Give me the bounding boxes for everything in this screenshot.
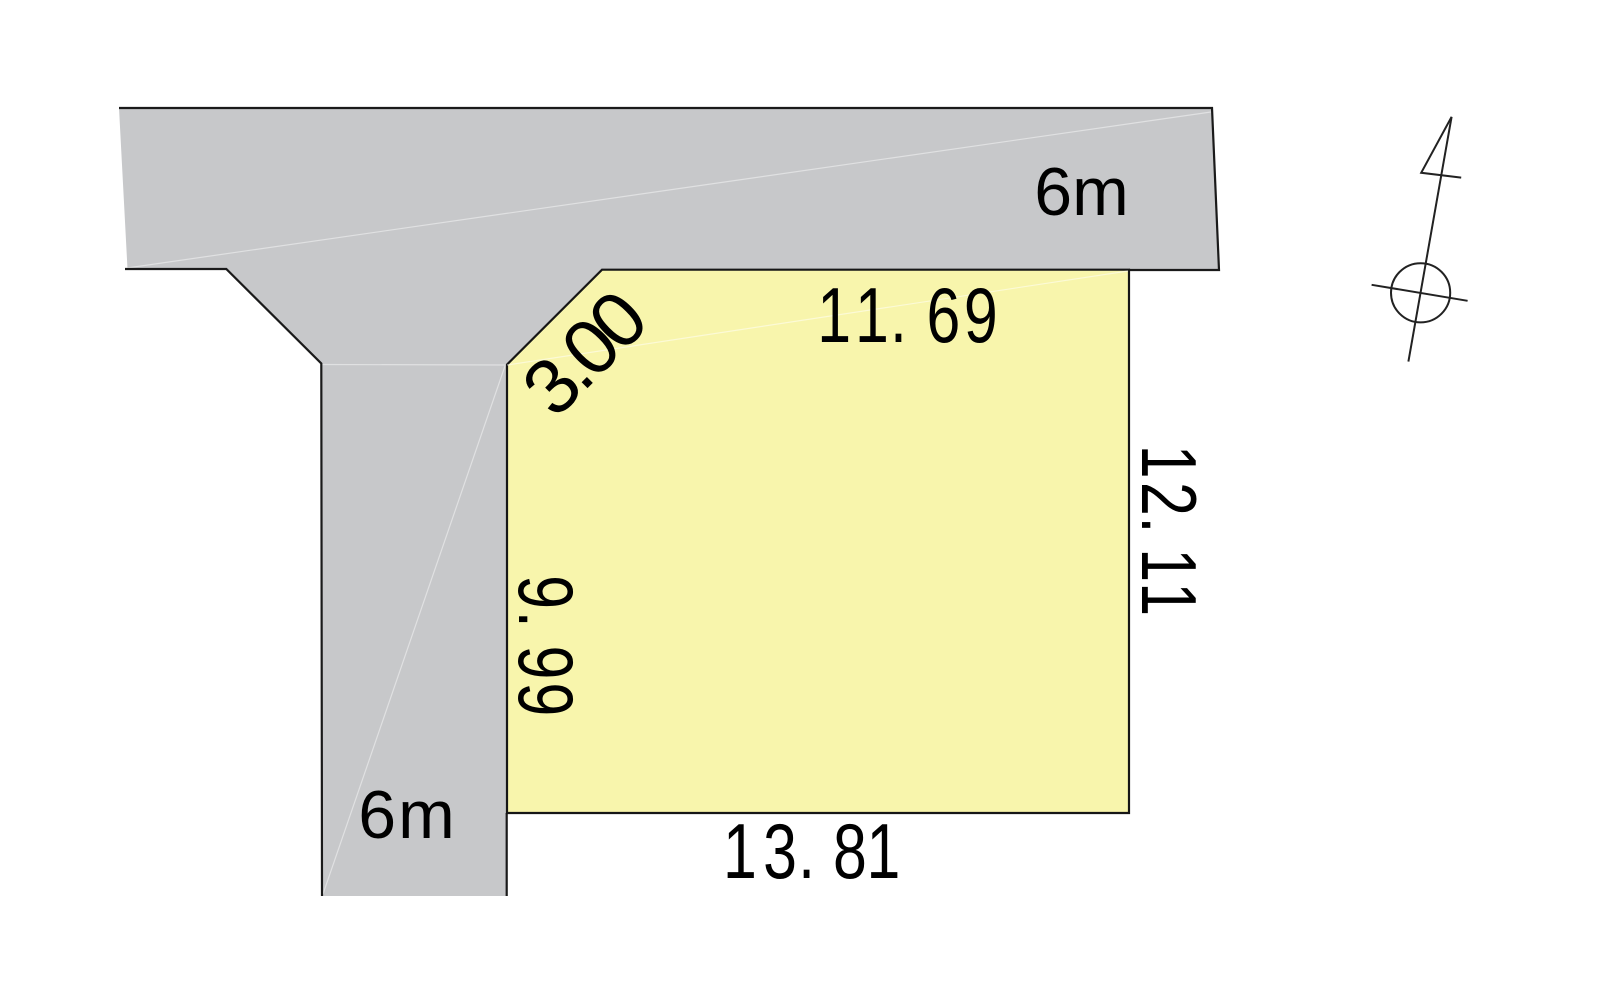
svg-text:13.81: 13.81 bbox=[723, 808, 900, 895]
svg-text:6m: 6m bbox=[358, 777, 456, 853]
svg-text:9.99: 9.99 bbox=[502, 575, 589, 716]
svg-text:12.11: 12.11 bbox=[1125, 445, 1212, 616]
svg-text:6m: 6m bbox=[1034, 154, 1128, 230]
